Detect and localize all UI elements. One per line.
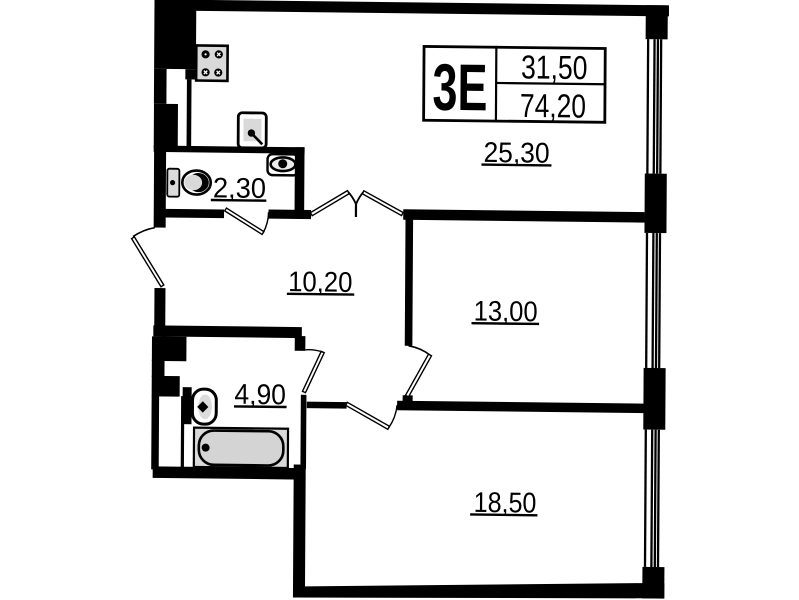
svg-text:74,20: 74,20: [520, 88, 586, 126]
svg-text:31,50: 31,50: [521, 49, 588, 87]
svg-text:3E: 3E: [432, 50, 487, 125]
